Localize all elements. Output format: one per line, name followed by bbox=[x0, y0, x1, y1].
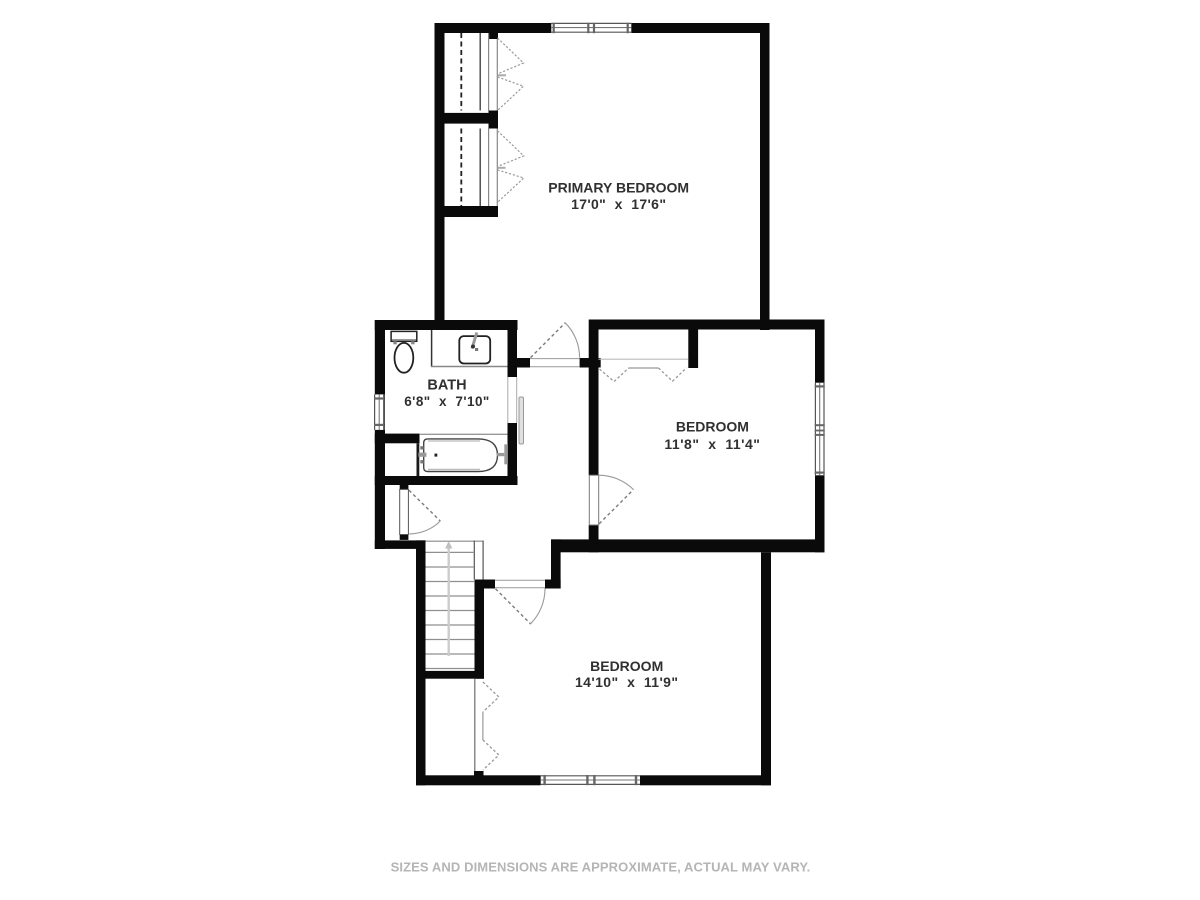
svg-text:14'10" x 11'9": 14'10" x 11'9" bbox=[575, 674, 678, 690]
svg-text:SIZES AND DIMENSIONS ARE APPRO: SIZES AND DIMENSIONS ARE APPROXIMATE, AC… bbox=[391, 860, 811, 875]
svg-text:BEDROOM: BEDROOM bbox=[590, 658, 663, 674]
svg-text:BATH: BATH bbox=[427, 378, 466, 394]
svg-text:BEDROOM: BEDROOM bbox=[676, 419, 749, 435]
svg-text:11'8" x 11'4": 11'8" x 11'4" bbox=[664, 436, 760, 452]
svg-text:PRIMARY BEDROOM: PRIMARY BEDROOM bbox=[548, 180, 689, 196]
svg-text:6'8" x 7'10": 6'8" x 7'10" bbox=[404, 394, 490, 409]
svg-text:17'0" x 17'6": 17'0" x 17'6" bbox=[571, 196, 666, 212]
